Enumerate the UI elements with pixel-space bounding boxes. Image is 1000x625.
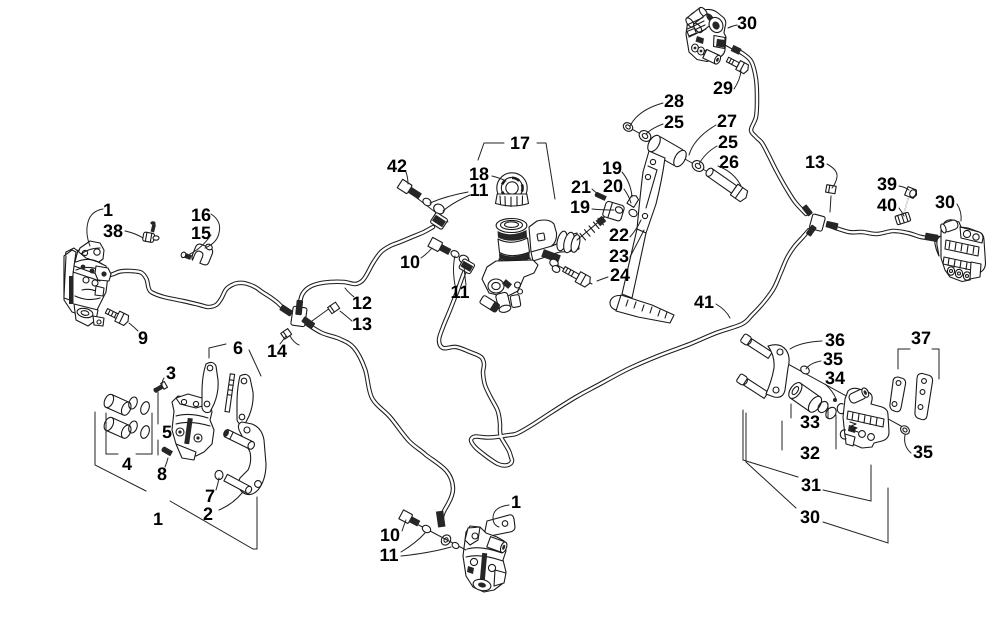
svg-text:19: 19 <box>602 158 622 178</box>
svg-text:32: 32 <box>800 443 820 463</box>
svg-text:42: 42 <box>387 156 407 176</box>
svg-text:14: 14 <box>267 341 287 361</box>
svg-text:25: 25 <box>718 132 738 152</box>
svg-text:33: 33 <box>800 412 820 432</box>
svg-text:30: 30 <box>800 507 820 527</box>
svg-text:36: 36 <box>825 330 845 350</box>
svg-text:22: 22 <box>609 225 629 245</box>
svg-text:24: 24 <box>610 265 630 285</box>
svg-text:28: 28 <box>664 91 684 111</box>
svg-text:30: 30 <box>935 192 955 212</box>
svg-text:5: 5 <box>162 422 172 442</box>
svg-text:4: 4 <box>122 454 132 474</box>
svg-text:41: 41 <box>694 292 714 312</box>
svg-text:12: 12 <box>352 293 372 313</box>
svg-text:34: 34 <box>825 368 845 388</box>
svg-text:10: 10 <box>400 252 420 272</box>
svg-text:11: 11 <box>450 282 469 302</box>
svg-text:1: 1 <box>103 200 113 220</box>
svg-text:21: 21 <box>571 177 591 197</box>
svg-text:19: 19 <box>570 197 590 217</box>
svg-text:11: 11 <box>469 180 488 200</box>
svg-text:35: 35 <box>913 442 933 462</box>
svg-text:23: 23 <box>609 246 629 266</box>
svg-text:11: 11 <box>379 545 398 565</box>
svg-text:13: 13 <box>805 152 825 172</box>
svg-text:27: 27 <box>717 111 737 131</box>
svg-text:30: 30 <box>737 13 757 33</box>
svg-text:29: 29 <box>713 78 733 98</box>
svg-text:10: 10 <box>380 525 400 545</box>
svg-text:40: 40 <box>877 195 897 215</box>
svg-text:6: 6 <box>233 338 243 358</box>
svg-text:25: 25 <box>664 112 684 132</box>
svg-text:13: 13 <box>352 314 372 334</box>
svg-text:9: 9 <box>138 328 148 348</box>
svg-text:26: 26 <box>719 152 739 172</box>
svg-text:38: 38 <box>103 221 123 241</box>
svg-text:3: 3 <box>166 363 176 383</box>
svg-text:16: 16 <box>191 205 211 225</box>
svg-text:39: 39 <box>877 174 897 194</box>
svg-text:20: 20 <box>603 176 623 196</box>
svg-text:31: 31 <box>801 475 821 495</box>
svg-text:1: 1 <box>511 492 521 512</box>
svg-text:37: 37 <box>911 328 931 348</box>
svg-text:1: 1 <box>153 509 163 529</box>
svg-text:35: 35 <box>823 349 843 369</box>
svg-text:17: 17 <box>510 133 530 153</box>
svg-text:7: 7 <box>205 486 215 506</box>
svg-text:15: 15 <box>191 223 211 243</box>
